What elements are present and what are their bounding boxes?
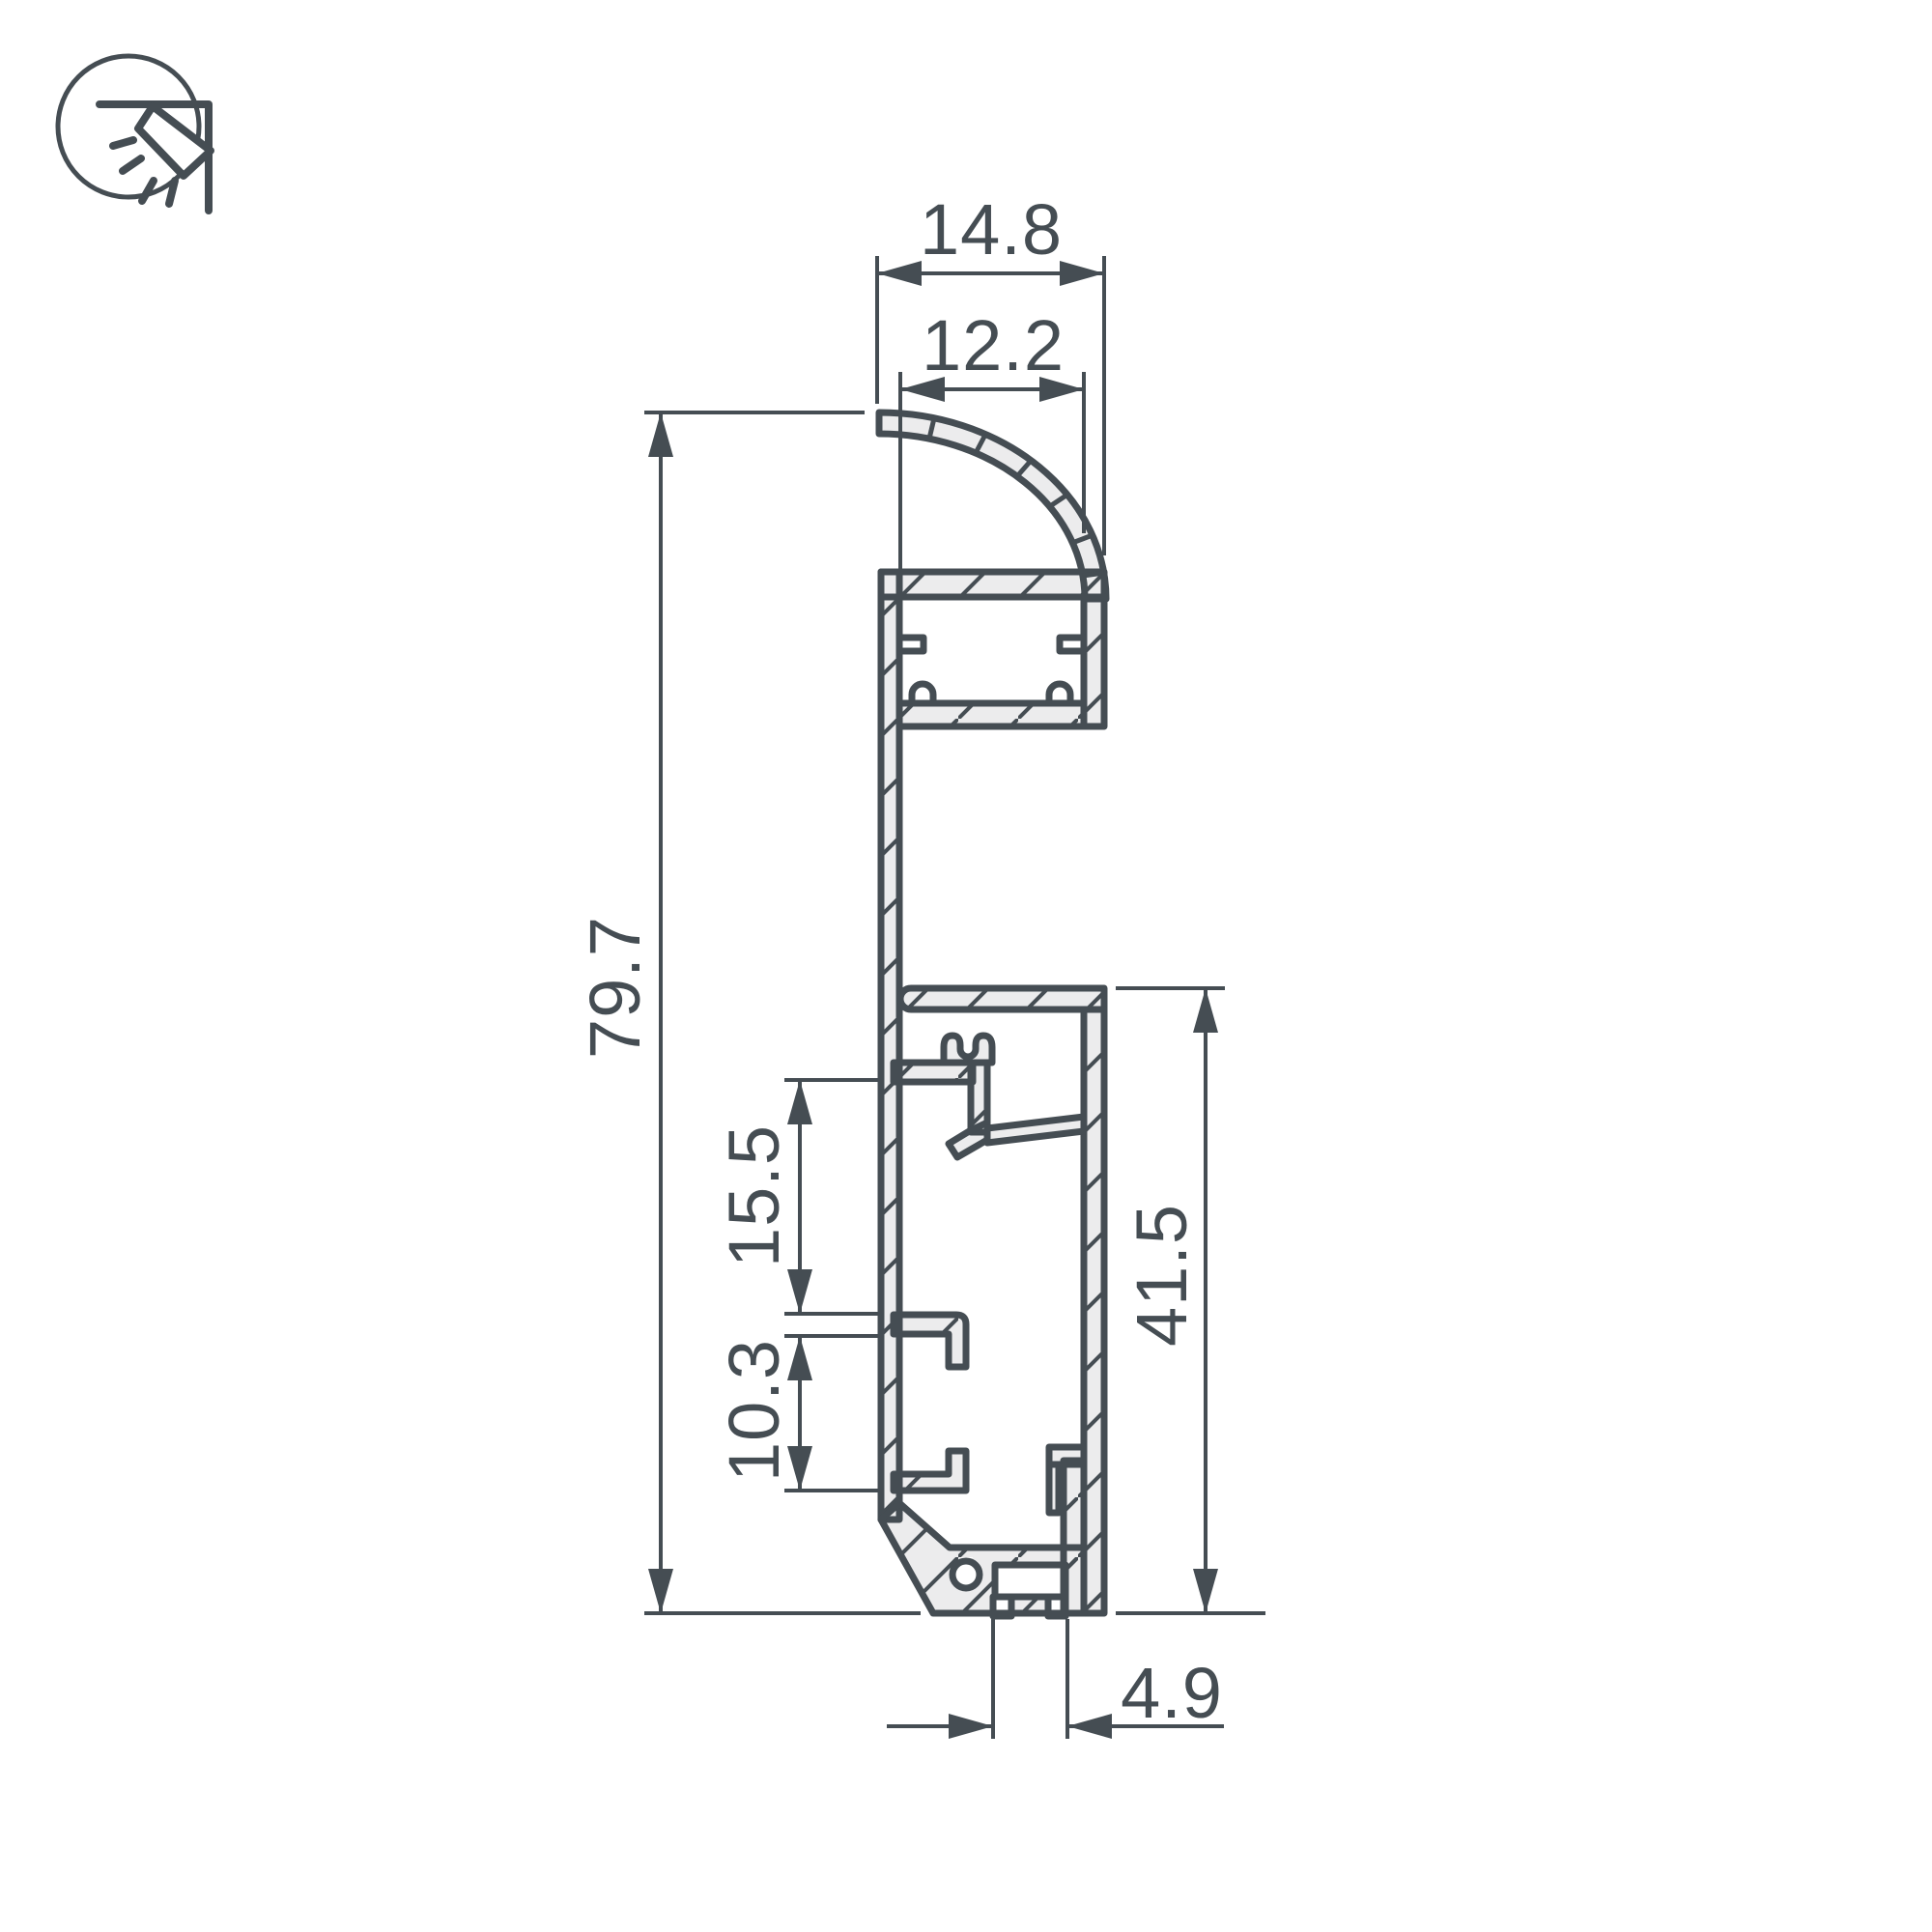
dimension-label: 10.3 (714, 1339, 794, 1482)
dimension-label: 4.9 (1121, 1653, 1223, 1733)
arrowhead (648, 1569, 673, 1613)
arrowhead (1193, 1569, 1218, 1613)
dimension-label: 79.7 (575, 916, 655, 1059)
arrowhead (949, 1714, 993, 1739)
profile-cross-section (879, 412, 1106, 1616)
wall-corner-light-icon (58, 56, 211, 211)
arrowhead (877, 261, 922, 286)
dimension-upper-slot: 15.5 (714, 1080, 879, 1314)
technical-drawing-page: 14.8 12.2 79.7 15.5 (0, 0, 1932, 1932)
arrowhead (1067, 1714, 1112, 1739)
dimension-label: 12.2 (922, 305, 1065, 385)
arrowhead (787, 1269, 812, 1314)
arrowhead (648, 412, 673, 457)
dimension-base-height: 41.5 (1116, 988, 1265, 1613)
arrowhead (787, 1080, 812, 1124)
dimension-lower-slot: 10.3 (714, 1336, 879, 1491)
arrowhead (1193, 988, 1218, 1033)
screw-groove (952, 1561, 980, 1588)
dimension-label: 15.5 (714, 1124, 794, 1267)
bottom-slot (995, 1565, 1065, 1597)
dimension-label: 14.8 (920, 189, 1063, 270)
dimension-foot-width: 4.9 (887, 1619, 1224, 1739)
dimension-label: 41.5 (1122, 1204, 1202, 1347)
arrowhead (1060, 261, 1104, 286)
profile-technical-drawing: 14.8 12.2 79.7 15.5 (0, 0, 1932, 1932)
